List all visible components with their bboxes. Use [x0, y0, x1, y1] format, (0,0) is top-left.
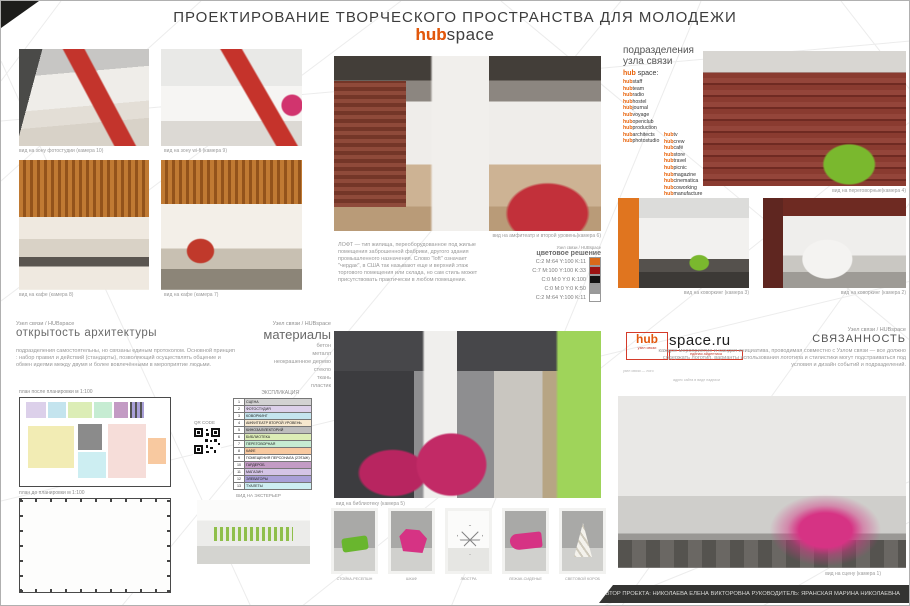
division-item: hubtv [664, 132, 702, 139]
hub-prefix: hub [664, 132, 674, 138]
hub-prefix: hub [623, 99, 633, 105]
openness-heading: открытость архитектуры [16, 327, 236, 339]
palette-row: C:2 M:64 Y:100 K:11 [471, 257, 601, 266]
lightbox-shape [574, 523, 592, 557]
legend-name: АМФИТЕАТР ВТОРОЙ УРОВЕНЬ [245, 420, 312, 427]
legend-row: 1СЦЕНА [234, 399, 312, 406]
brand-space: space: [636, 70, 659, 77]
hub-prefix: hub [623, 79, 633, 85]
hub-prefix: hub [623, 112, 633, 118]
caption-cafe8: вид на кафе (камера 8) [19, 292, 73, 298]
plan-room [108, 424, 146, 478]
brand-hub: hub [623, 70, 636, 77]
division-item: hubcoworking [664, 185, 702, 192]
division-label: team [633, 86, 645, 92]
legend-num: 1 [234, 399, 245, 406]
legend-row: 10ГАРДЕРОБ [234, 462, 312, 469]
materials-block: Узел связи / HUBspace материалы бетон ме… [226, 321, 331, 390]
divisions-heading-2: узла связи [623, 56, 694, 67]
division-item: hubjournal [623, 105, 694, 112]
thumb-wardrobe [388, 508, 435, 574]
reception-desk-shape [341, 535, 369, 552]
render-library [334, 331, 601, 498]
legend-name: ПОМЕЩЕНИЯ ПЕРСОНАЛА (2ЭТАЖ) [245, 455, 312, 462]
materials-heading: материалы [226, 327, 331, 342]
legend-row: 12ЭЛЕВАТОРЫ [234, 476, 312, 483]
division-item: hubstore [664, 152, 702, 159]
plan-room [48, 402, 66, 418]
plan-room [114, 402, 128, 418]
legend-name: КИНОЗАЛ/ЛЕКТОРИЙ [245, 427, 312, 434]
division-item: hubpicnic [664, 165, 702, 172]
division-item: hubmagazine [664, 172, 702, 179]
legend-name: ФОТОСТУДИЯ [245, 406, 312, 413]
division-item: hubteam [623, 86, 694, 93]
legend-table: 1СЦЕНА 2ФОТОСТУДИЯ 3КОВОРКИНГ 4АМФИТЕАТР… [233, 398, 312, 490]
legend-row: 3КОВОРКИНГ [234, 413, 312, 420]
legend-name: ЭЛЕВАТОРЫ [245, 476, 312, 483]
hub-prefix: hub [623, 92, 633, 98]
legend-num: 13 [234, 483, 245, 490]
qr-label: QR CODE [194, 420, 215, 425]
thumb-caption: ЛЮСТРА [445, 577, 492, 581]
division-item: hubhostel [623, 99, 694, 106]
division-item: hubproduction [623, 125, 694, 132]
caption-wifi: вид на зону wi-fi (камера 9) [164, 148, 227, 154]
legend-num: 8 [234, 448, 245, 455]
hub-prefix: hub [623, 125, 633, 131]
chandelier-shape [457, 525, 483, 555]
caption-coworking2: вид на коворкинг (камера 2) [706, 290, 906, 296]
legend-num: 10 [234, 462, 245, 469]
openness-block: Узел связи / HUBspace открытость архитек… [16, 321, 236, 369]
loft-definition-text: ЛОФТ — тип жилища, переоборудованное под… [338, 242, 478, 284]
hub-prefix: hub [664, 172, 674, 178]
connectivity-block: Узел связи / HUBspace СВЯЗАННОСТЬ каждое… [641, 327, 906, 369]
division-label: travel [674, 158, 687, 164]
division-item: hubradio [623, 92, 694, 99]
render-stage [618, 396, 906, 568]
material-item: металл [226, 350, 331, 358]
legend-row: 4АМФИТЕАТР ВТОРОЙ УРОВЕНЬ [234, 420, 312, 427]
plan-room [68, 402, 92, 418]
logo-hub-part: hub [415, 25, 446, 44]
divisions-block: подразделения узла связи hub space: hubs… [623, 45, 694, 145]
division-item: hubopenclub [623, 119, 694, 126]
lounger-shape [509, 531, 542, 550]
division-label: journal [633, 105, 649, 111]
division-item: hubmanufacture [664, 191, 702, 198]
divisions-brand: hub space: [623, 70, 694, 77]
caption-library: вид на библиотеку (камера 5) [336, 501, 405, 507]
division-item: hubcafé [664, 145, 702, 152]
legend-num: 3 [234, 413, 245, 420]
legend-row: 9ПОМЕЩЕНИЯ ПЕРСОНАЛА (2ЭТАЖ) [234, 455, 312, 462]
division-label: photostudio [633, 138, 660, 144]
page-title: ПРОЕКТИРОВАНИЕ ТВОРЧЕСКОГО ПРОСТРАНСТВА … [1, 9, 909, 26]
legend-name: КАФЕ [245, 448, 312, 455]
division-item: hubvoyage [623, 112, 694, 119]
thumb-caption: СТОЙКА-РЕСЕПШН [331, 577, 378, 581]
legend-num: 5 [234, 427, 245, 434]
wardrobe-shape [397, 529, 427, 553]
legend-num: 12 [234, 476, 245, 483]
division-label: magazine [674, 172, 697, 178]
legend-num: 2 [234, 406, 245, 413]
legend-name: ТУАЛЕТЫ [245, 483, 312, 490]
division-label: cinematica [674, 178, 699, 184]
presentation-board: ПРОЕКТИРОВАНИЕ ТВОРЧЕСКОГО ПРОСТРАНСТВА … [0, 0, 910, 606]
caption-cafe7: вид на кафе (камера 7) [164, 292, 218, 298]
sitelogo-note1: узел связи — лого [623, 369, 654, 373]
division-label: store [674, 152, 686, 158]
division-label: architects [633, 132, 655, 138]
plan-after-label: план после планировки м 1:100 [19, 389, 93, 395]
palette-heading: цветовое решение [471, 250, 601, 257]
legend-row: 7ПЕРЕГОВОРНАЯ [234, 441, 312, 448]
hub-prefix: hub [664, 165, 674, 171]
thumb-caption: СВЕТОВОЙ КОРОБ [559, 577, 606, 581]
legend-row: 8КАФЕ [234, 448, 312, 455]
hub-prefix: hub [664, 145, 674, 151]
palette-swatch [589, 275, 601, 284]
legend-num: 9 [234, 455, 245, 462]
thumb-lightbox [559, 508, 606, 574]
thumb-lounger [502, 508, 549, 574]
legend-name: КОВОРКИНГ [245, 413, 312, 420]
palette-swatch [589, 266, 601, 275]
render-exterior-model [197, 500, 310, 564]
material-item: стекло [226, 366, 331, 374]
hub-prefix: hub [623, 132, 633, 138]
division-item: hubstaff [623, 79, 694, 86]
hub-prefix: hub [664, 139, 674, 145]
credits-bar: АВТОР ПРОЕКТА: НИКОЛАЕВА ЕЛЕНА ВИКТОРОВН… [599, 585, 910, 603]
legend-name: ГАРДЕРОБ [245, 462, 312, 469]
sitelogo-note2: адрес сайта в виде надписи [673, 378, 720, 382]
division-label: voyage [633, 112, 650, 118]
legend-num: 11 [234, 469, 245, 476]
legend-num: 6 [234, 434, 245, 441]
palette-label: C:2 M:64 Y:100 K:11 [536, 259, 586, 265]
hub-prefix: hub [623, 86, 633, 92]
plan-room [26, 402, 46, 418]
division-label: café [674, 145, 684, 151]
plan-room-elevators [130, 402, 144, 418]
materials-list: бетон металл неокрашенное дерево стекло … [226, 342, 331, 390]
material-item: пластик [226, 382, 331, 390]
qr-code [193, 427, 221, 455]
material-item: бетон [226, 342, 331, 350]
division-label: tv [674, 132, 678, 138]
material-item: неокрашенное дерево [226, 358, 331, 366]
divisions-heading-1: подразделения [623, 45, 694, 56]
hub-prefix: hub [664, 191, 674, 197]
legend-row: 2ФОТОСТУДИЯ [234, 406, 312, 413]
openness-body: подразделения самостоятельны, но связаны… [16, 348, 236, 369]
hub-prefix: hub [664, 178, 674, 184]
legend-row: 13ТУАЛЕТЫ [234, 483, 312, 490]
hub-prefix: hub [623, 119, 633, 125]
palette-swatch [589, 257, 601, 266]
palette-label: C:7 M:100 Y:100 K:33 [532, 268, 586, 274]
palette-row: C:7 M:100 Y:100 K:33 [471, 266, 601, 275]
render-cafe-camera7 [161, 160, 302, 290]
legend-name: ПЕРЕГОВОРНАЯ [245, 441, 312, 448]
render-coworking-camera3 [618, 198, 749, 288]
legend-num: 7 [234, 441, 245, 448]
division-label: picnic [674, 165, 687, 171]
render-photostudio-zone [19, 49, 149, 146]
legend-row: 5КИНОЗАЛ/ЛЕКТОРИЙ [234, 427, 312, 434]
thumb-caption: ШКАФ [388, 577, 435, 581]
division-label: radio [633, 92, 645, 98]
division-label: staff [633, 79, 643, 85]
division-label: openclub [633, 119, 654, 125]
thumb-chandelier [445, 508, 492, 574]
render-cafe-camera8 [19, 160, 149, 290]
logo-space-part: space [447, 25, 495, 44]
legend-name: БИБЛИОТЕКА [245, 434, 312, 441]
thumb-reception-desk [331, 508, 378, 574]
division-label: manufacture [674, 191, 703, 197]
exterior-label: ВИД НА ЭКСТЕРЬЕР [206, 493, 311, 498]
plan-room-cafe [148, 438, 166, 464]
render-coworking-camera2 [763, 198, 906, 288]
legend-name: СЦЕНА [245, 399, 312, 406]
material-item: ткань [226, 374, 331, 382]
legend-name: МАГАЗИН [245, 469, 312, 476]
caption-meeting: вид на переговорные(камера 4) [706, 188, 906, 194]
thumb-caption: ЛЕЖАК-СИДЕНЬЕ [502, 577, 549, 581]
hub-prefix: hub [623, 138, 633, 144]
hub-prefix: hub [664, 185, 674, 191]
legend-title: ЭКСПЛИКАЦИЯ [239, 390, 299, 396]
palette-row: C:0 M:0 Y:0 K:100 [471, 275, 601, 284]
division-label: coworking [674, 185, 697, 191]
plan-room [28, 426, 74, 468]
render-meeting-rooms [703, 51, 906, 186]
render-wifi-zone [161, 49, 302, 146]
division-item: hubcinematica [664, 178, 702, 185]
divisions-col2: hubtv hubcrew hubcafé hubstore hubtravel… [664, 132, 702, 198]
hub-prefix: hub [664, 158, 674, 164]
division-label: production [633, 125, 657, 131]
division-label: crew [674, 139, 685, 145]
division-label: hostel [633, 99, 647, 105]
caption-amphitheater: вид на амфитеатр и второй уровень(камера… [401, 233, 601, 239]
division-item: hubcrew [664, 139, 702, 146]
connectivity-heading: СВЯЗАННОСТЬ [641, 333, 906, 345]
palette-label: C:0 M:0 Y:0 K:100 [541, 277, 586, 283]
plan-before-label: план до планировки м 1:100 [19, 490, 85, 496]
floor-plan-after [19, 397, 171, 487]
plan-room [94, 402, 112, 418]
connectivity-body: каждое мероприятие и каждая инициатива, … [641, 348, 906, 369]
legend-row: 6БИБЛИОТЕКА [234, 434, 312, 441]
legend-row: 11МАГАЗИН [234, 469, 312, 476]
plan-room [78, 452, 106, 478]
floor-plan-before [19, 498, 171, 593]
caption-stage: вид на сцену (камера 1) [656, 571, 881, 577]
plan-room-stage [78, 424, 102, 450]
render-amphitheater [334, 56, 601, 231]
hub-prefix: hub [623, 105, 633, 111]
hub-prefix: hub [664, 152, 674, 158]
hubspace-logo: hubspace [1, 25, 909, 45]
legend-num: 4 [234, 420, 245, 427]
caption-photostudio: вид на зону фотостудии (камера 10) [19, 148, 103, 154]
division-item: hubtravel [664, 158, 702, 165]
